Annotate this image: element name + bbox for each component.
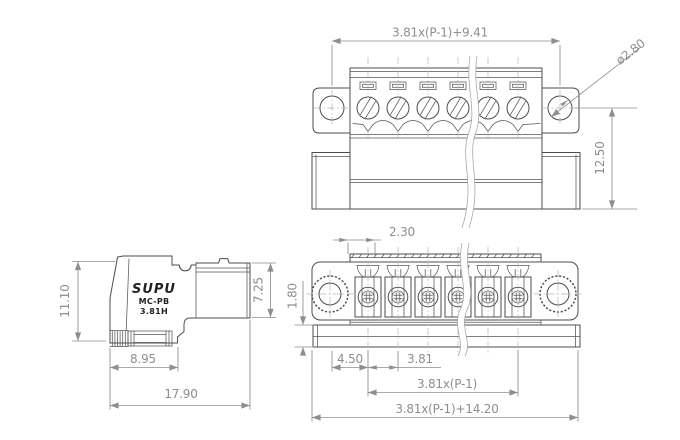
front-screw-poles: [357, 57, 529, 140]
dim-total-width: 3.81x(P-1)+14.20: [395, 402, 498, 416]
terminal-pole-1: [355, 247, 381, 353]
dim-depth-front: 8.95: [130, 352, 156, 366]
screw-pole-1: [357, 57, 379, 140]
dim-front-height: 12.50: [593, 141, 607, 174]
screw-pole-3: [417, 57, 439, 140]
dim-pitch: 3.81: [407, 352, 433, 366]
dim-slot-offset: 2.30: [389, 225, 415, 239]
bottom-view: 2.30 1.80 4.50 3.81 3.81x(P-1) 3.81x(P-1…: [286, 225, 583, 422]
front-dimensions: 3.81x(P-1)+9.41 ø2.80 12.50: [332, 26, 648, 210]
dim-side-height: 11.10: [58, 284, 72, 317]
dim-end-offset: 4.50: [337, 352, 363, 366]
dim-span: 3.81x(P-1): [417, 377, 477, 391]
front-housing-outline: [312, 68, 580, 209]
terminal-pole-5: [475, 247, 501, 353]
dim-rail-height: 1.80: [286, 283, 300, 309]
side-hatch-face: [112, 332, 125, 347]
bottom-terminal-poles: [355, 247, 531, 353]
dim-hole-diameter: ø2.80: [613, 36, 648, 67]
side-view: SUPU MC-PB 3.81H 11.10 7.25 8.95 17.90: [58, 256, 276, 410]
bottom-mounting-holes: [306, 270, 582, 318]
terminal-pole-2: [385, 247, 411, 353]
bottom-serration: [352, 254, 534, 257]
technical-drawing: 3.81x(P-1)+9.41 ø2.80 12.50 SUPU MC-PB 3…: [0, 0, 680, 440]
mounting-hole-right: [534, 270, 582, 318]
brand-text: SUPU: [132, 282, 176, 297]
dim-depth-total: 17.90: [164, 387, 197, 401]
screw-pole-4: [447, 57, 469, 140]
screw-pole-2: [387, 57, 409, 140]
product-label: SUPU MC-PB 3.81H: [132, 282, 176, 316]
bottom-body-outline: [312, 254, 580, 347]
screw-pole-6: [507, 57, 529, 140]
terminal-pole-3: [415, 247, 441, 353]
dim-plug-height: 7.25: [252, 277, 266, 303]
screw-pole-5: [477, 57, 499, 140]
terminal-pole-6: [505, 247, 531, 353]
front-flange-left: [313, 88, 350, 133]
series-text: MC-PB: [139, 297, 170, 306]
side-outline: [110, 256, 250, 347]
dim-front-width: 3.81x(P-1)+9.41: [392, 26, 488, 40]
front-flange-right: [542, 88, 579, 133]
pitch-code-text: 3.81H: [140, 307, 168, 316]
mounting-hole-left: [306, 270, 354, 318]
front-view: 3.81x(P-1)+9.41 ø2.80 12.50: [312, 26, 648, 229]
